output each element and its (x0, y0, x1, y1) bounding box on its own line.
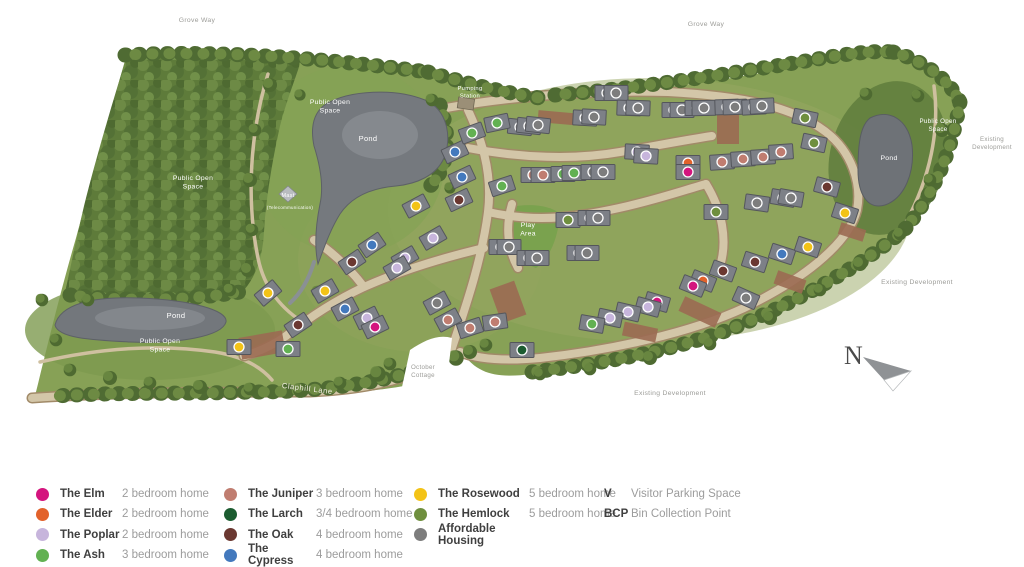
map-label: PlayArea (520, 222, 536, 238)
tree-icon (244, 383, 257, 396)
map-label: ExistingDevelopment (972, 136, 1012, 151)
legend-item-name: The Poplar (60, 529, 122, 541)
legend-item: The Ash3 bedroom home (36, 545, 209, 565)
map-label: Pond (359, 134, 378, 143)
tree-icon (246, 224, 259, 237)
legend-swatch-hemlock (414, 508, 427, 521)
tree-icon (50, 334, 63, 347)
plot (744, 194, 770, 212)
tree-icon (241, 263, 255, 277)
legend-item: The Rosewood5 bedroom home (414, 484, 616, 504)
plot-marker-affordable (699, 103, 709, 113)
legend-item-name: The Elm (60, 488, 122, 500)
legend-swatch-poplar (36, 528, 49, 541)
plot-marker-juniper (758, 152, 769, 163)
plot-marker-affordable (593, 213, 603, 223)
plot (582, 109, 607, 125)
legend-item-name: The Ash (60, 549, 122, 561)
plot (676, 165, 700, 180)
legend-item-name: The Oak (248, 529, 316, 541)
legend-item-desc: 5 bedroom home (529, 488, 616, 500)
map-label: Pond (880, 155, 897, 162)
map-label: Mast (281, 193, 294, 199)
tree-icon (763, 311, 777, 325)
plot-marker-affordable (589, 112, 600, 123)
legend-item: The Elm2 bedroom home (36, 484, 209, 504)
tree-icon (370, 366, 385, 381)
plot-marker-affordable (504, 242, 514, 252)
plot (525, 251, 549, 266)
plot-marker-juniper (717, 157, 728, 168)
legend-item-name: Affordable Housing (438, 523, 529, 547)
legend-note: BCPBin Collection Point (604, 504, 741, 524)
tree-icon (534, 368, 547, 381)
plot (604, 86, 628, 101)
plot (750, 98, 775, 114)
legend-note-symbol: BCP (604, 508, 631, 520)
legend-swatch-juniper (224, 488, 237, 501)
map-label: Grove Way (688, 21, 725, 28)
legend-item: The Poplar2 bedroom home (36, 525, 209, 545)
plot-marker-hemlock (563, 215, 573, 225)
plot-marker-affordable (598, 167, 608, 177)
plot-marker-larch (517, 345, 527, 355)
legend-item-desc: 2 bedroom home (122, 488, 209, 500)
plot-marker-poplar (641, 151, 652, 162)
legend-note-desc: Visitor Parking Space (631, 488, 741, 500)
legend-item: The Oak4 bedroom home (224, 525, 413, 545)
tree-icon (144, 377, 157, 390)
map-label: Existing Development (881, 279, 953, 286)
plot (575, 246, 599, 261)
legend-item: The Cypress4 bedroom home (224, 545, 413, 565)
legend-item-desc: 3/4 bedroom home (316, 508, 413, 520)
legend: The Elm2 bedroom homeThe Elder2 bedroom … (0, 481, 1024, 561)
legend-item-name: The Hemlock (438, 508, 529, 520)
tree-icon (894, 228, 907, 241)
plot (525, 116, 550, 133)
legend-item: The Elder2 bedroom home (36, 504, 209, 524)
plot-marker-juniper (738, 154, 749, 165)
legend-column-3: The Rosewood5 bedroom homeThe Hemlock5 b… (414, 484, 616, 545)
plot-marker-juniper (538, 170, 548, 180)
legend-item-desc: 2 bedroom home (122, 508, 209, 520)
map-label: Pond (167, 311, 186, 320)
north-compass: N (844, 341, 911, 391)
plot-marker-ash (283, 344, 293, 354)
legend-swatch-rosewood (414, 488, 427, 501)
tree-icon (263, 78, 277, 92)
legend-item-name: The Elder (60, 508, 122, 520)
plot (586, 211, 610, 226)
tree-icon (448, 350, 463, 365)
legend-item-desc: 4 bedroom home (316, 529, 403, 541)
tree-icon (814, 284, 827, 297)
legend-item-desc: 3 bedroom home (122, 549, 209, 561)
tree-icon (64, 364, 77, 377)
map-label: (Telecommunication) (267, 205, 313, 210)
legend-note: VVisitor Parking Space (604, 484, 741, 504)
legend-swatch-affordable (414, 528, 427, 541)
plot (634, 148, 659, 164)
legend-item-desc: 2 bedroom home (122, 529, 209, 541)
legend-item-desc: 3 bedroom home (316, 488, 403, 500)
map-label: Existing Development (634, 390, 706, 397)
legend-column-4: VVisitor Parking SpaceBCPBin Collection … (604, 484, 741, 525)
plot (692, 100, 716, 115)
tree-icon (584, 363, 597, 376)
plot-marker-affordable (611, 88, 621, 98)
plot-marker-affordable (730, 102, 740, 112)
plot-marker-affordable (533, 120, 544, 131)
plot-marker-affordable (532, 253, 542, 263)
plot (704, 205, 728, 220)
legend-swatch-elder (36, 508, 49, 521)
tree-icon (924, 174, 937, 187)
tree-icon (463, 345, 477, 359)
map-label: Grove Way (179, 17, 216, 24)
legend-note-symbol: V (604, 488, 631, 500)
plot (591, 165, 615, 180)
plot (227, 340, 251, 355)
tree-icon (426, 94, 439, 107)
plot-marker-juniper (489, 316, 500, 327)
site-plan-svg: Grove WayGrove WayPublic OpenSpacePondPu… (0, 0, 1024, 470)
legend-item: Affordable Housing (414, 525, 616, 545)
legend-item: The Juniper3 bedroom home (224, 484, 413, 504)
legend-swatch-elm (36, 488, 49, 501)
plot-marker-affordable (757, 101, 768, 112)
legend-item-desc: 5 bedroom home (529, 508, 616, 520)
tree-icon (36, 294, 49, 307)
plot-marker-affordable (582, 248, 592, 258)
map-label: PumpingStation (458, 86, 483, 99)
tree-icon (294, 89, 305, 100)
tree-icon (193, 380, 207, 394)
legend-item-name: The Larch (248, 508, 316, 520)
tree-icon (103, 371, 117, 385)
tree-icon (384, 358, 397, 371)
tree-icon (480, 339, 493, 352)
plot-marker-juniper (776, 147, 787, 158)
plot (626, 100, 651, 116)
tree-icon (243, 173, 257, 187)
legend-swatch-larch (224, 508, 237, 521)
plot-marker-hemlock (711, 207, 721, 217)
plot (769, 144, 794, 161)
plot (556, 213, 580, 228)
tree-icon (334, 377, 347, 390)
tree-icon (82, 294, 95, 307)
plot-marker-elm (683, 167, 693, 177)
plot (510, 343, 534, 358)
plot-marker-ash (569, 168, 579, 178)
plot (482, 313, 508, 331)
legend-note-desc: Bin Collection Point (631, 508, 731, 520)
tree-icon (860, 88, 873, 101)
legend-column-1: The Elm2 bedroom homeThe Elder2 bedroom … (36, 484, 209, 565)
compass-letter: N (844, 341, 863, 370)
tree-icon (643, 351, 657, 365)
tree-icon (912, 90, 925, 103)
legend-item: The Larch3/4 bedroom home (224, 504, 413, 524)
tree-icon (853, 257, 867, 271)
plot-marker-rosewood (234, 342, 244, 352)
legend-swatch-ash (36, 549, 49, 562)
legend-item-name: The Juniper (248, 488, 316, 500)
legend-column-2: The Juniper3 bedroom homeThe Larch3/4 be… (224, 484, 413, 565)
legend-item: The Hemlock5 bedroom home (414, 504, 616, 524)
map-label: OctoberCottage (411, 364, 435, 379)
legend-item-desc: 4 bedroom home (316, 549, 403, 561)
tree-icon (704, 338, 717, 351)
tree-icon (224, 284, 237, 297)
legend-swatch-oak (224, 528, 237, 541)
plot-marker-affordable (633, 103, 643, 113)
legend-swatch-cypress (224, 549, 237, 562)
tree-icon (249, 124, 262, 137)
site-plan: Grove WayGrove WayPublic OpenSpacePondPu… (0, 0, 1024, 470)
plot (276, 342, 300, 357)
legend-item-name: The Cypress (248, 543, 316, 567)
plot-marker-affordable (751, 197, 762, 208)
legend-item-name: The Rosewood (438, 488, 529, 500)
